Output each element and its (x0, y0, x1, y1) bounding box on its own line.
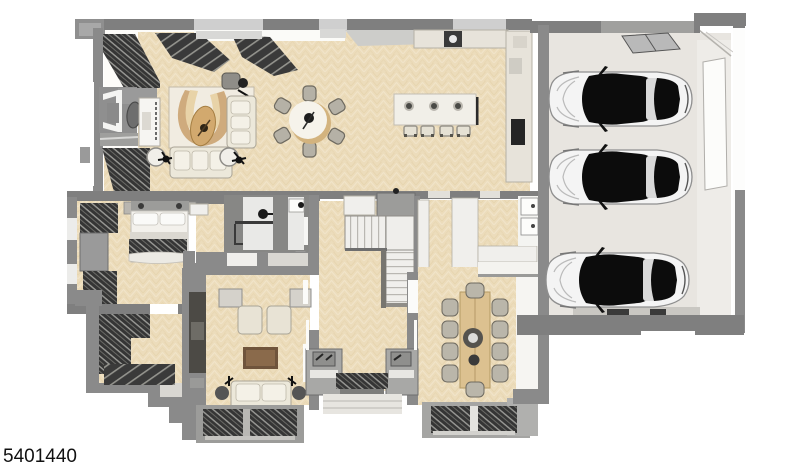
svg-text:5401440: 5401440 (3, 446, 77, 467)
